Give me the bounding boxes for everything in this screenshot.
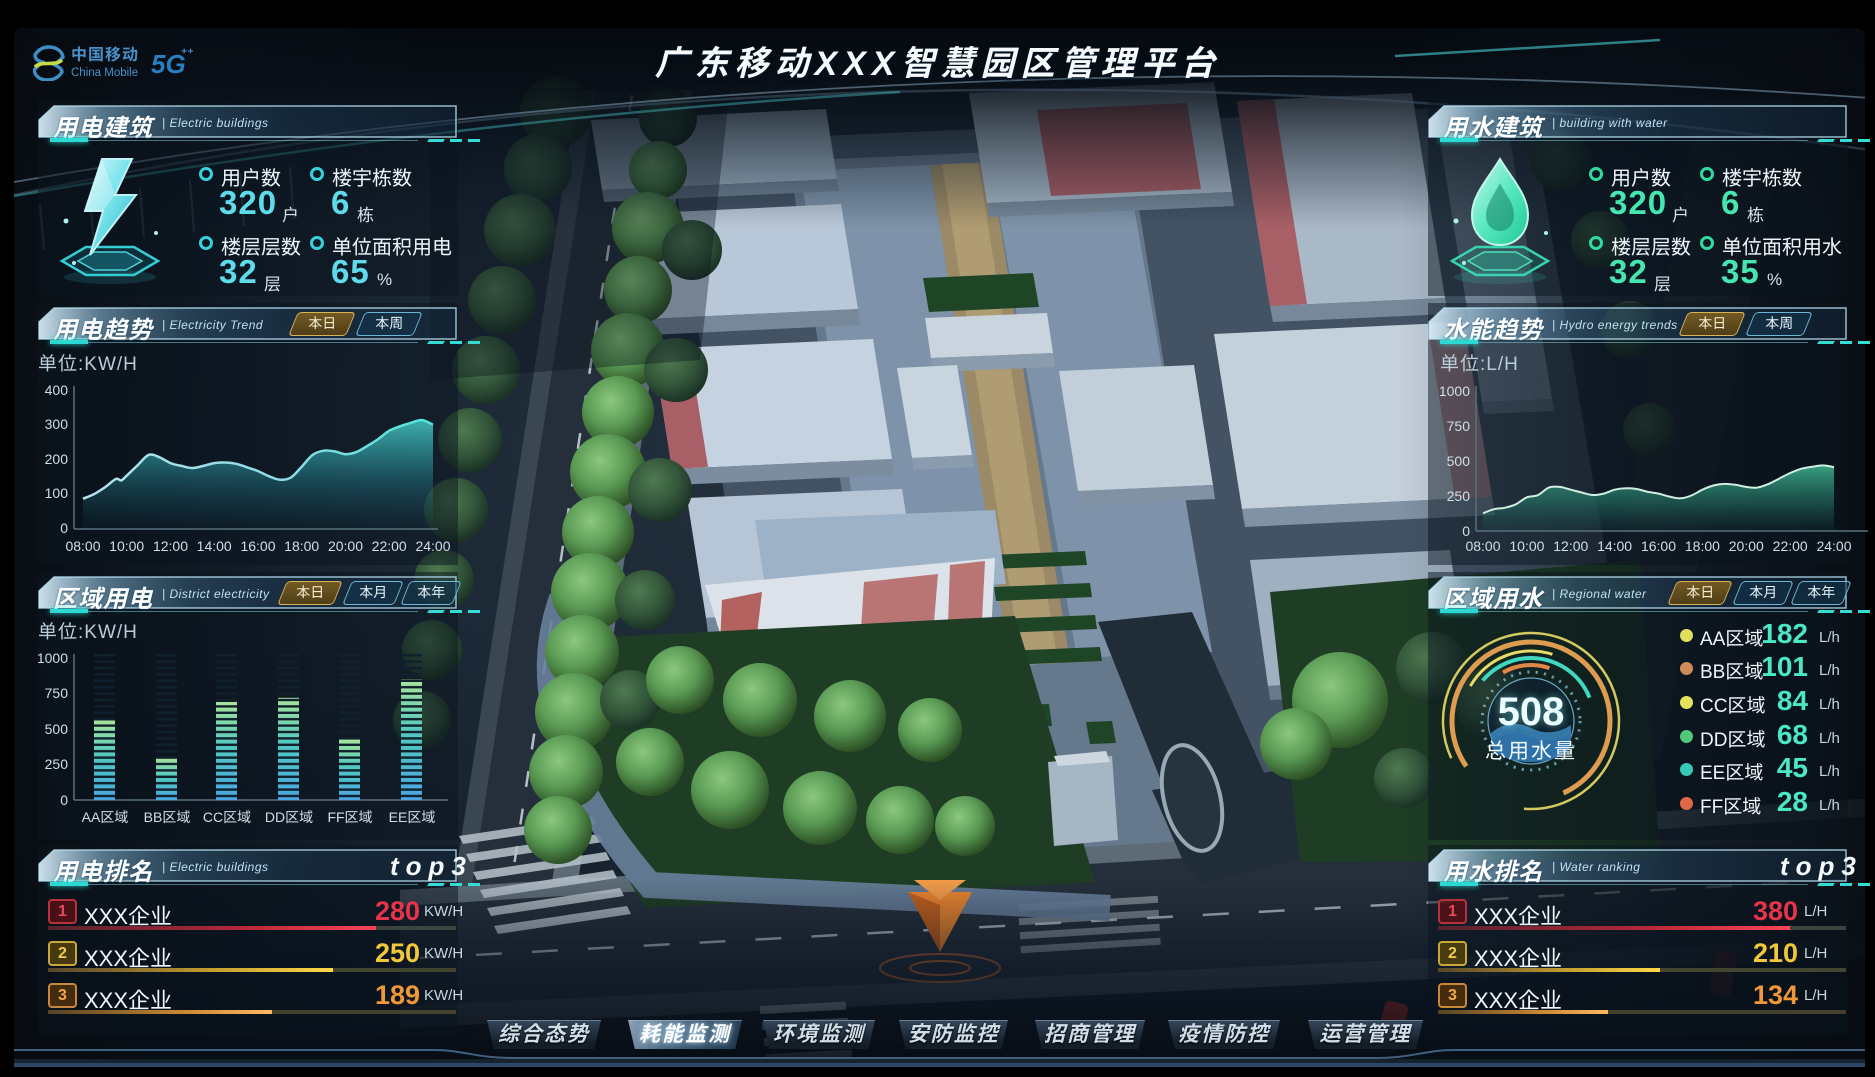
svg-text:10:00: 10:00 [1509,538,1544,554]
svg-text:1000: 1000 [38,650,68,666]
svg-text:250: 250 [45,756,69,772]
svg-text:14:00: 14:00 [1597,538,1632,554]
svg-text:16:00: 16:00 [240,538,275,554]
svg-text:中国移动: 中国移动 [71,46,139,64]
svg-text:20:00: 20:00 [1729,538,1764,554]
svg-text:24:00: 24:00 [1816,538,1851,554]
svg-text:⁺⁺: ⁺⁺ [181,46,194,60]
svg-text:250: 250 [1447,488,1471,504]
svg-text:22:00: 22:00 [1773,538,1808,554]
svg-text:750: 750 [1447,418,1471,434]
svg-text:12:00: 12:00 [1553,538,1588,554]
svg-text:BB区域: BB区域 [144,809,191,825]
svg-text:14:00: 14:00 [197,538,232,554]
svg-text:100: 100 [45,485,69,501]
svg-text:08:00: 08:00 [1465,538,1500,554]
svg-text:China Mobile: China Mobile [71,67,138,79]
svg-text:10:00: 10:00 [109,538,144,554]
svg-text:22:00: 22:00 [372,538,407,554]
svg-text:单位:KW/H: 单位:KW/H [38,354,138,375]
svg-text:0: 0 [60,792,68,808]
svg-text:500: 500 [1447,453,1471,469]
svg-text:18:00: 18:00 [284,538,319,554]
svg-text:FF区域: FF区域 [327,809,372,825]
svg-text:1000: 1000 [1439,383,1470,399]
svg-text:24:00: 24:00 [415,538,450,554]
svg-text:DD区域: DD区域 [265,809,313,825]
svg-text:200: 200 [45,451,69,467]
svg-text:16:00: 16:00 [1641,538,1676,554]
svg-text:单位:KW/H: 单位:KW/H [38,622,138,643]
svg-text:750: 750 [45,685,69,701]
svg-text:500: 500 [45,721,69,737]
svg-text:0: 0 [1462,523,1470,539]
svg-text:400: 400 [45,382,69,398]
svg-text:20:00: 20:00 [328,538,363,554]
svg-text:CC区域: CC区域 [203,809,251,825]
svg-text:AA区域: AA区域 [82,809,129,825]
svg-text:18:00: 18:00 [1685,538,1720,554]
svg-text:300: 300 [45,416,69,432]
svg-text:12:00: 12:00 [153,538,188,554]
svg-text:EE区域: EE区域 [389,809,436,825]
svg-text:单位:L/H: 单位:L/H [1440,354,1519,375]
svg-text:08:00: 08:00 [65,538,100,554]
svg-text:0: 0 [60,520,68,536]
